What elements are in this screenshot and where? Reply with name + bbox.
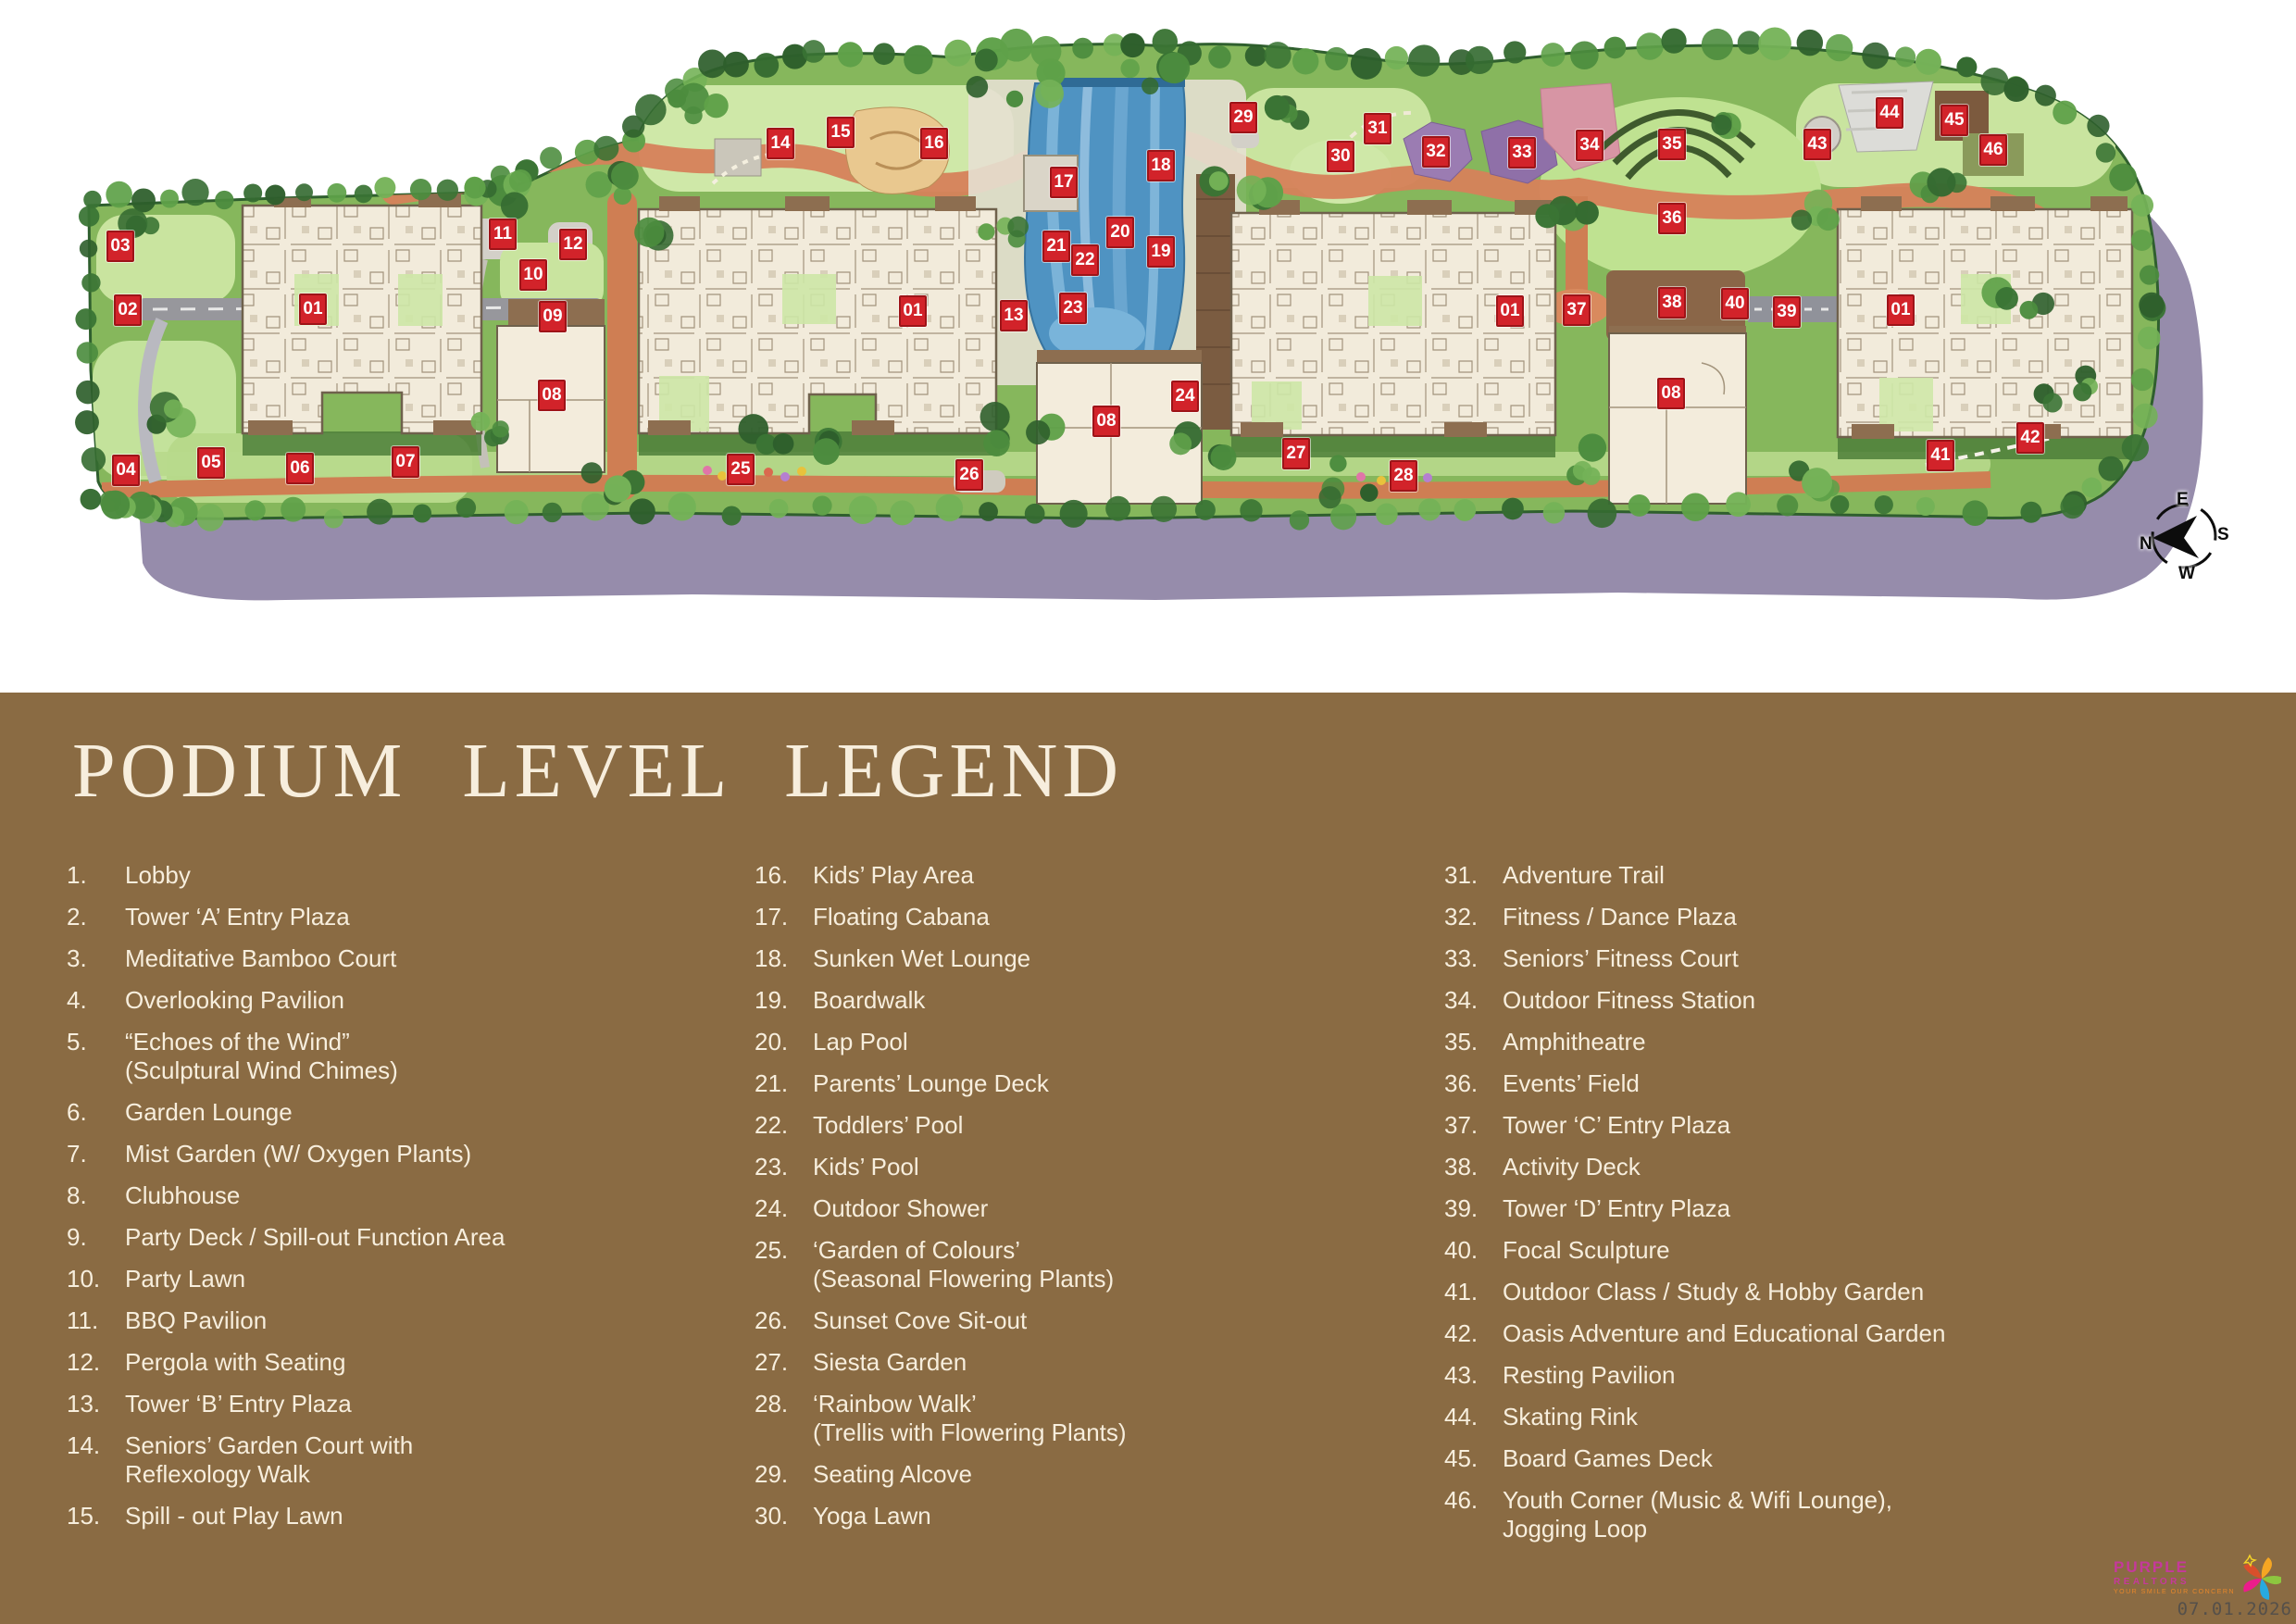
legend-item-label: Outdoor Shower bbox=[813, 1194, 988, 1223]
legend-item-22: 22.Toddlers’ Pool bbox=[755, 1111, 1403, 1140]
map-marker-08: 08 bbox=[1657, 378, 1685, 409]
map-marker-33: 33 bbox=[1508, 137, 1536, 169]
map-marker-24: 24 bbox=[1171, 381, 1199, 412]
map-marker-22: 22 bbox=[1071, 244, 1099, 276]
map-marker-08: 08 bbox=[538, 380, 566, 411]
legend-item-number: 41. bbox=[1444, 1278, 1503, 1306]
legend-item-label: Outdoor Fitness Station bbox=[1503, 986, 1755, 1015]
legend-item-label: Tower ‘C’ Entry Plaza bbox=[1503, 1111, 1730, 1140]
map-marker-06: 06 bbox=[286, 453, 314, 484]
map-marker-04: 04 bbox=[112, 455, 140, 486]
legend-item-23: 23.Kids’ Pool bbox=[755, 1153, 1403, 1181]
legend-item-number: 1. bbox=[67, 861, 125, 890]
map-marker-11: 11 bbox=[489, 219, 517, 250]
legend-item-number: 12. bbox=[67, 1348, 125, 1377]
map-marker-10: 10 bbox=[519, 259, 547, 291]
legend-item-label: Tower ‘B’ Entry Plaza bbox=[125, 1390, 352, 1418]
map-marker-35: 35 bbox=[1658, 129, 1686, 160]
map-marker-37: 37 bbox=[1563, 294, 1591, 326]
map-marker-45: 45 bbox=[1940, 105, 1968, 136]
map-marker-46: 46 bbox=[1979, 134, 2007, 166]
legend-item-label: Seniors’ Garden Court withReflexology Wa… bbox=[125, 1431, 413, 1489]
legend-item-36: 36.Events’ Field bbox=[1444, 1069, 2240, 1098]
legend-item-40: 40.Focal Sculpture bbox=[1444, 1236, 2240, 1265]
legend-item-5: 5.“Echoes of the Wind”(Sculptural Wind C… bbox=[67, 1028, 705, 1085]
legend-item-label: Youth Corner (Music & Wifi Lounge),Joggi… bbox=[1503, 1486, 1892, 1543]
legend-item-number: 11. bbox=[67, 1306, 125, 1335]
legend-item-number: 29. bbox=[755, 1460, 813, 1489]
site-plan-map: 0302010405060711121009081415161718293021… bbox=[0, 0, 2296, 693]
legend-item-number: 26. bbox=[755, 1306, 813, 1335]
legend-item-44: 44.Skating Rink bbox=[1444, 1403, 2240, 1431]
map-marker-01: 01 bbox=[899, 295, 927, 327]
legend-item-16: 16.Kids’ Play Area bbox=[755, 861, 1403, 890]
compass-letter-left: N bbox=[2140, 534, 2152, 555]
legend-item-label: Events’ Field bbox=[1503, 1069, 1640, 1098]
legend-item-number: 17. bbox=[755, 903, 813, 931]
legend-item-number: 43. bbox=[1444, 1361, 1503, 1390]
legend-item-number: 42. bbox=[1444, 1319, 1503, 1348]
legend-item-19: 19.Boardwalk bbox=[755, 986, 1403, 1015]
legend-item-label: Kids’ Play Area bbox=[813, 861, 974, 890]
map-marker-38: 38 bbox=[1658, 287, 1686, 319]
legend-item-label: Meditative Bamboo Court bbox=[125, 944, 396, 973]
map-marker-40: 40 bbox=[1721, 288, 1749, 319]
legend-item-label: Adventure Trail bbox=[1503, 861, 1665, 890]
legend-item-38: 38.Activity Deck bbox=[1444, 1153, 2240, 1181]
map-marker-28: 28 bbox=[1390, 460, 1417, 492]
compass-letter-bottom: W bbox=[2178, 564, 2195, 584]
legend-item-15: 15.Spill - out Play Lawn bbox=[67, 1502, 705, 1530]
map-marker-01: 01 bbox=[299, 294, 327, 325]
legend-item-number: 28. bbox=[755, 1390, 813, 1447]
legend-item-label: Party Lawn bbox=[125, 1265, 245, 1293]
map-marker-08: 08 bbox=[1092, 406, 1120, 437]
legend-item-41: 41.Outdoor Class / Study & Hobby Garden bbox=[1444, 1278, 2240, 1306]
legend-item-45: 45.Board Games Deck bbox=[1444, 1444, 2240, 1473]
brochure-page: 0302010405060711121009081415161718293021… bbox=[0, 0, 2296, 1624]
compass-needle bbox=[2152, 516, 2199, 558]
legend-column-2: 16.Kids’ Play Area17.Floating Cabana18.S… bbox=[755, 861, 1403, 1543]
legend-item-27: 27.Siesta Garden bbox=[755, 1348, 1403, 1377]
compass: E S N W bbox=[2143, 495, 2225, 577]
legend-item-18: 18.Sunken Wet Lounge bbox=[755, 944, 1403, 973]
map-marker-23: 23 bbox=[1059, 293, 1087, 324]
legend-item-21: 21.Parents’ Lounge Deck bbox=[755, 1069, 1403, 1098]
map-marker-44: 44 bbox=[1876, 97, 1903, 129]
legend-item-number: 21. bbox=[755, 1069, 813, 1098]
purple-realtors-logo: PURPLE REALTORS YOUR SMILE OUR CONCERN bbox=[2114, 1554, 2281, 1600]
legend-item-46: 46.Youth Corner (Music & Wifi Lounge),Jo… bbox=[1444, 1486, 2240, 1543]
legend-item-35: 35.Amphitheatre bbox=[1444, 1028, 2240, 1056]
legend-item-number: 39. bbox=[1444, 1194, 1503, 1223]
map-marker-36: 36 bbox=[1658, 203, 1686, 234]
legend-item-number: 18. bbox=[755, 944, 813, 973]
legend-item-number: 36. bbox=[1444, 1069, 1503, 1098]
legend-item-11: 11.BBQ Pavilion bbox=[67, 1306, 705, 1335]
legend-item-label: “Echoes of the Wind”(Sculptural Wind Chi… bbox=[125, 1028, 398, 1085]
map-marker-02: 02 bbox=[114, 294, 142, 326]
legend-item-label: Lobby bbox=[125, 861, 191, 890]
legend-item-label: Clubhouse bbox=[125, 1181, 240, 1210]
map-marker-30: 30 bbox=[1327, 141, 1354, 172]
legend-item-label: Parents’ Lounge Deck bbox=[813, 1069, 1049, 1098]
legend-item-label: Tower ‘D’ Entry Plaza bbox=[1503, 1194, 1730, 1223]
legend-item-label: Sunset Cove Sit-out bbox=[813, 1306, 1027, 1335]
legend-item-number: 6. bbox=[67, 1098, 125, 1127]
map-marker-34: 34 bbox=[1576, 130, 1603, 161]
map-marker-39: 39 bbox=[1773, 296, 1801, 328]
legend-item-1: 1.Lobby bbox=[67, 861, 705, 890]
legend-item-number: 3. bbox=[67, 944, 125, 973]
legend-item-label: Outdoor Class / Study & Hobby Garden bbox=[1503, 1278, 1924, 1306]
legend-item-label: Party Deck / Spill-out Function Area bbox=[125, 1223, 505, 1252]
map-marker-41: 41 bbox=[1927, 440, 1954, 471]
legend-item-30: 30.Yoga Lawn bbox=[755, 1502, 1403, 1530]
legend-item-label: Activity Deck bbox=[1503, 1153, 1641, 1181]
legend-item-10: 10.Party Lawn bbox=[67, 1265, 705, 1293]
legend-item-number: 44. bbox=[1444, 1403, 1503, 1431]
map-marker-01: 01 bbox=[1887, 294, 1915, 326]
legend-item-label: Fitness / Dance Plaza bbox=[1503, 903, 1737, 931]
page-title: PODIUM LEVEL LEGEND bbox=[72, 730, 1123, 813]
legend-item-label: Pergola with Seating bbox=[125, 1348, 345, 1377]
map-marker-07: 07 bbox=[392, 446, 419, 478]
legend-item-label: Boardwalk bbox=[813, 986, 925, 1015]
legend-item-number: 38. bbox=[1444, 1153, 1503, 1181]
map-marker-16: 16 bbox=[920, 128, 948, 159]
legend-item-label: Mist Garden (W/ Oxygen Plants) bbox=[125, 1140, 471, 1168]
map-marker-21: 21 bbox=[1042, 231, 1070, 262]
map-marker-18: 18 bbox=[1147, 150, 1175, 181]
legend-item-12: 12.Pergola with Seating bbox=[67, 1348, 705, 1377]
legend-item-number: 23. bbox=[755, 1153, 813, 1181]
legend-item-number: 19. bbox=[755, 986, 813, 1015]
legend-item-33: 33.Seniors’ Fitness Court bbox=[1444, 944, 2240, 973]
legend-item-label: Resting Pavilion bbox=[1503, 1361, 1675, 1390]
legend-item-label: Toddlers’ Pool bbox=[813, 1111, 963, 1140]
map-marker-12: 12 bbox=[559, 229, 587, 260]
legend-item-42: 42.Oasis Adventure and Educational Garde… bbox=[1444, 1319, 2240, 1348]
legend-item-34: 34.Outdoor Fitness Station bbox=[1444, 986, 2240, 1015]
map-marker-19: 19 bbox=[1147, 236, 1175, 268]
legend-item-17: 17.Floating Cabana bbox=[755, 903, 1403, 931]
legend-item-number: 10. bbox=[67, 1265, 125, 1293]
legend-item-label: Overlooking Pavilion bbox=[125, 986, 344, 1015]
legend-item-label: Oasis Adventure and Educational Garden bbox=[1503, 1319, 1945, 1348]
legend-column-1: 1.Lobby2.Tower ‘A’ Entry Plaza3.Meditati… bbox=[67, 861, 705, 1543]
legend-item-20: 20.Lap Pool bbox=[755, 1028, 1403, 1056]
logo-name-top: PURPLE bbox=[2114, 1558, 2235, 1577]
legend-item-number: 40. bbox=[1444, 1236, 1503, 1265]
legend-item-number: 46. bbox=[1444, 1486, 1503, 1543]
legend-item-number: 35. bbox=[1444, 1028, 1503, 1056]
legend-item-label: ‘Rainbow Walk’(Trellis with Flowering Pl… bbox=[813, 1390, 1127, 1447]
legend-item-25: 25.‘Garden of Colours’(Seasonal Flowerin… bbox=[755, 1236, 1403, 1293]
map-marker-01: 01 bbox=[1496, 295, 1524, 327]
legend-item-label: Seating Alcove bbox=[813, 1460, 972, 1489]
logo-tagline: YOUR SMILE OUR CONCERN bbox=[2114, 1589, 2235, 1595]
legend-item-number: 34. bbox=[1444, 986, 1503, 1015]
legend-item-label: Amphitheatre bbox=[1503, 1028, 1646, 1056]
legend-item-29: 29.Seating Alcove bbox=[755, 1460, 1403, 1489]
legend-item-number: 32. bbox=[1444, 903, 1503, 931]
legend-item-label: Siesta Garden bbox=[813, 1348, 967, 1377]
legend-item-label: Lap Pool bbox=[813, 1028, 908, 1056]
legend-item-label: Board Games Deck bbox=[1503, 1444, 1713, 1473]
legend-item-number: 13. bbox=[67, 1390, 125, 1418]
legend-item-24: 24.Outdoor Shower bbox=[755, 1194, 1403, 1223]
legend-item-number: 15. bbox=[67, 1502, 125, 1530]
legend-item-4: 4.Overlooking Pavilion bbox=[67, 986, 705, 1015]
map-marker-14: 14 bbox=[767, 128, 794, 159]
map-marker-27: 27 bbox=[1282, 438, 1310, 469]
legend-item-6: 6.Garden Lounge bbox=[67, 1098, 705, 1127]
legend-item-number: 25. bbox=[755, 1236, 813, 1293]
legend-item-26: 26.Sunset Cove Sit-out bbox=[755, 1306, 1403, 1335]
legend-item-39: 39.Tower ‘D’ Entry Plaza bbox=[1444, 1194, 2240, 1223]
legend-item-label: Floating Cabana bbox=[813, 903, 990, 931]
map-marker-15: 15 bbox=[827, 117, 855, 148]
legend-item-number: 4. bbox=[67, 986, 125, 1015]
legend-item-2: 2.Tower ‘A’ Entry Plaza bbox=[67, 903, 705, 931]
legend-item-3: 3.Meditative Bamboo Court bbox=[67, 944, 705, 973]
logo-name-bottom: REALTORS bbox=[2114, 1577, 2235, 1587]
legend-item-32: 32.Fitness / Dance Plaza bbox=[1444, 903, 2240, 931]
map-marker-25: 25 bbox=[727, 454, 755, 485]
legend-item-label: Tower ‘A’ Entry Plaza bbox=[125, 903, 350, 931]
legend-item-label: ‘Garden of Colours’(Seasonal Flowering P… bbox=[813, 1236, 1114, 1293]
legend-item-number: 27. bbox=[755, 1348, 813, 1377]
legend-item-7: 7.Mist Garden (W/ Oxygen Plants) bbox=[67, 1140, 705, 1168]
map-marker-31: 31 bbox=[1364, 113, 1391, 144]
legend-item-number: 2. bbox=[67, 903, 125, 931]
legend-item-number: 5. bbox=[67, 1028, 125, 1085]
legend-item-number: 9. bbox=[67, 1223, 125, 1252]
legend-item-43: 43.Resting Pavilion bbox=[1444, 1361, 2240, 1390]
map-marker-42: 42 bbox=[2016, 422, 2044, 454]
legend-item-number: 31. bbox=[1444, 861, 1503, 890]
legend-item-37: 37.Tower ‘C’ Entry Plaza bbox=[1444, 1111, 2240, 1140]
legend-item-14: 14.Seniors’ Garden Court withReflexology… bbox=[67, 1431, 705, 1489]
legend-item-number: 16. bbox=[755, 861, 813, 890]
legend-item-label: Kids’ Pool bbox=[813, 1153, 919, 1181]
map-marker-05: 05 bbox=[197, 447, 225, 479]
map-marker-32: 32 bbox=[1422, 136, 1450, 168]
map-marker-03: 03 bbox=[106, 231, 134, 262]
compass-letter-right: S bbox=[2217, 525, 2229, 545]
legend-item-9: 9.Party Deck / Spill-out Function Area bbox=[67, 1223, 705, 1252]
map-marker-26: 26 bbox=[955, 459, 983, 491]
legend-column-3: 31.Adventure Trail32.Fitness / Dance Pla… bbox=[1444, 861, 2240, 1556]
map-marker-20: 20 bbox=[1106, 217, 1134, 248]
legend-item-8: 8.Clubhouse bbox=[67, 1181, 705, 1210]
legend-item-label: Sunken Wet Lounge bbox=[813, 944, 1030, 973]
map-marker-43: 43 bbox=[1803, 129, 1831, 160]
map-marker-09: 09 bbox=[539, 301, 567, 332]
legend-item-number: 24. bbox=[755, 1194, 813, 1223]
legend-item-number: 37. bbox=[1444, 1111, 1503, 1140]
legend-item-number: 7. bbox=[67, 1140, 125, 1168]
legend-item-number: 14. bbox=[67, 1431, 125, 1489]
legend-item-label: Seniors’ Fitness Court bbox=[1503, 944, 1739, 973]
legend-item-13: 13.Tower ‘B’ Entry Plaza bbox=[67, 1390, 705, 1418]
compass-letter-top: E bbox=[2177, 490, 2189, 510]
map-marker-17: 17 bbox=[1050, 167, 1078, 198]
map-marker-29: 29 bbox=[1229, 102, 1257, 133]
legend-item-label: BBQ Pavilion bbox=[125, 1306, 267, 1335]
legend-item-number: 22. bbox=[755, 1111, 813, 1140]
legend-item-number: 30. bbox=[755, 1502, 813, 1530]
legend-item-label: Spill - out Play Lawn bbox=[125, 1502, 343, 1530]
legend-item-number: 33. bbox=[1444, 944, 1503, 973]
legend-panel: PODIUM LEVEL LEGEND 1.Lobby2.Tower ‘A’ E… bbox=[0, 693, 2296, 1624]
legend-item-number: 8. bbox=[67, 1181, 125, 1210]
legend-item-number: 45. bbox=[1444, 1444, 1503, 1473]
legend-item-31: 31.Adventure Trail bbox=[1444, 861, 2240, 890]
legend-item-label: Skating Rink bbox=[1503, 1403, 1638, 1431]
map-marker-13: 13 bbox=[1000, 300, 1028, 331]
date-stamp: 07.01.2026 bbox=[2177, 1599, 2292, 1619]
logo-star-icon bbox=[2240, 1554, 2281, 1600]
legend-item-number: 20. bbox=[755, 1028, 813, 1056]
legend-item-label: Focal Sculpture bbox=[1503, 1236, 1670, 1265]
legend-item-label: Garden Lounge bbox=[125, 1098, 293, 1127]
legend-item-label: Yoga Lawn bbox=[813, 1502, 931, 1530]
legend-item-28: 28.‘Rainbow Walk’(Trellis with Flowering… bbox=[755, 1390, 1403, 1447]
